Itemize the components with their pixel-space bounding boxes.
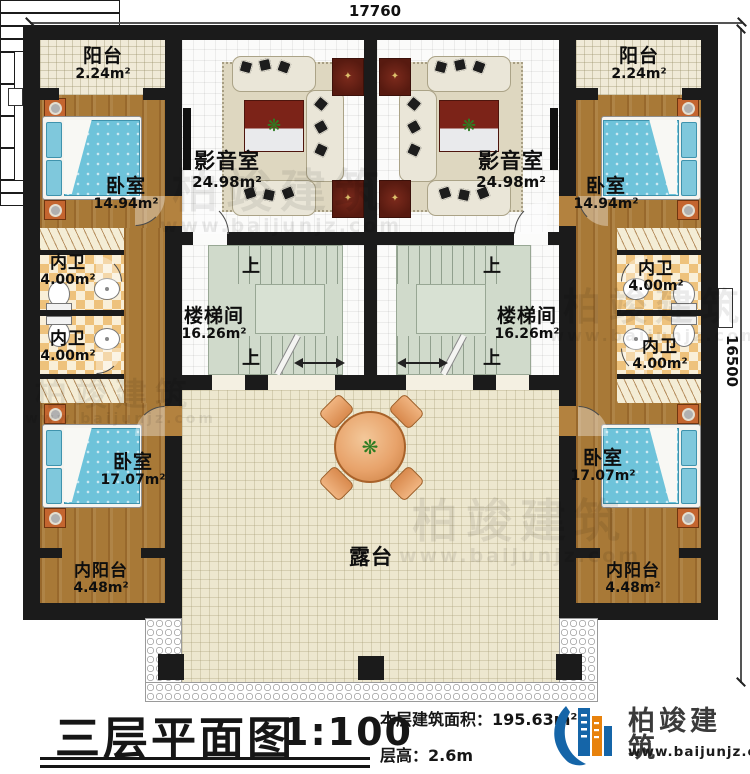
stair-arrow [403, 362, 441, 364]
bed-pillow [46, 160, 62, 196]
speaker-panel: ✦ [332, 180, 364, 218]
title-underline [40, 765, 370, 768]
stair-arrowhead [397, 358, 406, 368]
room-label-balcony-right: 阳台 2.24m² [589, 46, 689, 83]
stair-landing [255, 284, 325, 334]
wall-bath [40, 374, 124, 379]
speaker-panel: ✦ [379, 58, 411, 96]
nightstand [677, 404, 699, 424]
stair-up-label: 上 [483, 344, 501, 370]
nightstand [677, 508, 699, 528]
door-opening [406, 375, 473, 390]
toilet-tank [671, 316, 697, 325]
stair-up-label: 上 [242, 252, 260, 278]
hall-left [124, 228, 165, 403]
column [358, 656, 384, 680]
title-underline [40, 757, 370, 760]
window [0, 0, 120, 13]
sofa-pillow [258, 58, 272, 72]
room-label-terrace: 露台 [321, 546, 421, 570]
window [0, 116, 15, 148]
closet-right-1 [617, 228, 701, 250]
hall-right [576, 228, 617, 403]
sofa-pillow [453, 58, 467, 72]
nightstand [44, 508, 66, 528]
speaker-panel: ✦ [379, 180, 411, 218]
coffee-table: ❋ [244, 100, 304, 152]
bed-pillow [681, 122, 697, 158]
window-mullion [44, 32, 162, 33]
round-table: ❋ [334, 411, 406, 483]
column [158, 654, 184, 680]
bed-pillow [681, 468, 697, 504]
wall-bath [617, 374, 701, 379]
wall-bath [40, 310, 124, 316]
floor-height-note: 层高：2.6m [380, 742, 473, 766]
floor-plan: ❋ ✦ ✦ ❋ ✦ ✦ [0, 0, 750, 774]
dimension-right: 16500 [723, 331, 741, 391]
closet-left-1 [40, 228, 124, 250]
bed-pillow [681, 430, 697, 466]
room-label-bedroom-upper-right: 卧室 14.94m² [556, 176, 656, 213]
closet-left-2 [40, 379, 124, 403]
wall-niche [718, 288, 733, 328]
dimension-line-top [30, 22, 742, 24]
wall-right [701, 25, 718, 620]
coffee-table: ❋ [439, 100, 499, 152]
floor-height-value: 2.6m [428, 746, 473, 765]
room-label-stair-left: 楼梯间 16.26m² [163, 306, 265, 343]
stair-up-label: 上 [483, 252, 501, 278]
speaker-panel: ✦ [332, 58, 364, 96]
door-opening [559, 406, 576, 436]
nightstand [44, 404, 66, 424]
door-opening [496, 375, 529, 390]
room-label-bath-left-2: 内卫 4.00m² [30, 330, 106, 365]
floor-height-label: 层高： [380, 746, 428, 765]
nightstand [44, 98, 66, 118]
room-label-bedroom-upper-left: 卧室 14.94m² [76, 176, 176, 213]
wall-stub [141, 548, 165, 558]
room-label-bath-right-1: 内卫 4.00m² [618, 260, 694, 295]
stair-arrowhead [336, 358, 345, 368]
closet-right-2 [617, 379, 701, 403]
wall-bath [617, 310, 701, 316]
door-opening [268, 375, 335, 390]
floor-area-label: 本层建筑面积： [380, 710, 492, 729]
room-label-bath-left-1: 内卫 4.00m² [30, 254, 106, 289]
wall-left [23, 25, 40, 620]
wall-party [364, 25, 377, 390]
terrace-railing [145, 682, 598, 702]
room-label-inner-balcony-right: 内阳台 4.48m² [578, 562, 688, 597]
room-label-bath-right-2: 内卫 4.00m² [622, 338, 698, 373]
room-label-inner-balcony-left: 内阳台 4.48m² [46, 562, 156, 597]
room-label-bedroom-lower-right: 卧室 17.07m² [553, 448, 653, 485]
nightstand [44, 200, 66, 220]
bed-pillow [46, 122, 62, 158]
door-opening [165, 406, 182, 436]
stair-arrowhead [439, 358, 448, 368]
wall-stub [576, 88, 598, 100]
room-label-balcony-left: 阳台 2.24m² [53, 46, 153, 83]
stair-up-label: 上 [242, 344, 260, 370]
stair-arrow [300, 362, 338, 364]
bed-pillow [46, 468, 62, 504]
wall-bath [617, 250, 701, 255]
room-label-media-left: 影音室 24.98m² [176, 150, 278, 190]
wall-niche [8, 88, 23, 106]
nightstand [677, 200, 699, 220]
wall-stub [143, 88, 165, 100]
toilet-tank [46, 316, 72, 325]
nightstand [677, 98, 699, 118]
company-logo-icon [544, 700, 624, 768]
door-opening [212, 375, 245, 390]
column [556, 654, 582, 680]
room-label-stair-right: 楼梯间 16.26m² [476, 306, 578, 343]
room-label-bedroom-lower-left: 卧室 17.07m² [83, 452, 183, 489]
window [0, 148, 15, 180]
wall-stub [40, 548, 62, 558]
bed-pillow [46, 430, 62, 466]
room-label-media-right: 影音室 24.98m² [460, 150, 562, 190]
wall-stub [679, 548, 701, 558]
bed-pillow [681, 160, 697, 196]
window [0, 52, 15, 84]
window-mullion [580, 32, 698, 33]
wall-stub [576, 548, 600, 558]
stair-arrowhead [294, 358, 303, 368]
dimension-top: 17760 [335, 2, 415, 20]
company-website: www.baijunjz.com [628, 744, 750, 760]
wall-stub [682, 88, 701, 100]
wall-stub [40, 88, 59, 100]
